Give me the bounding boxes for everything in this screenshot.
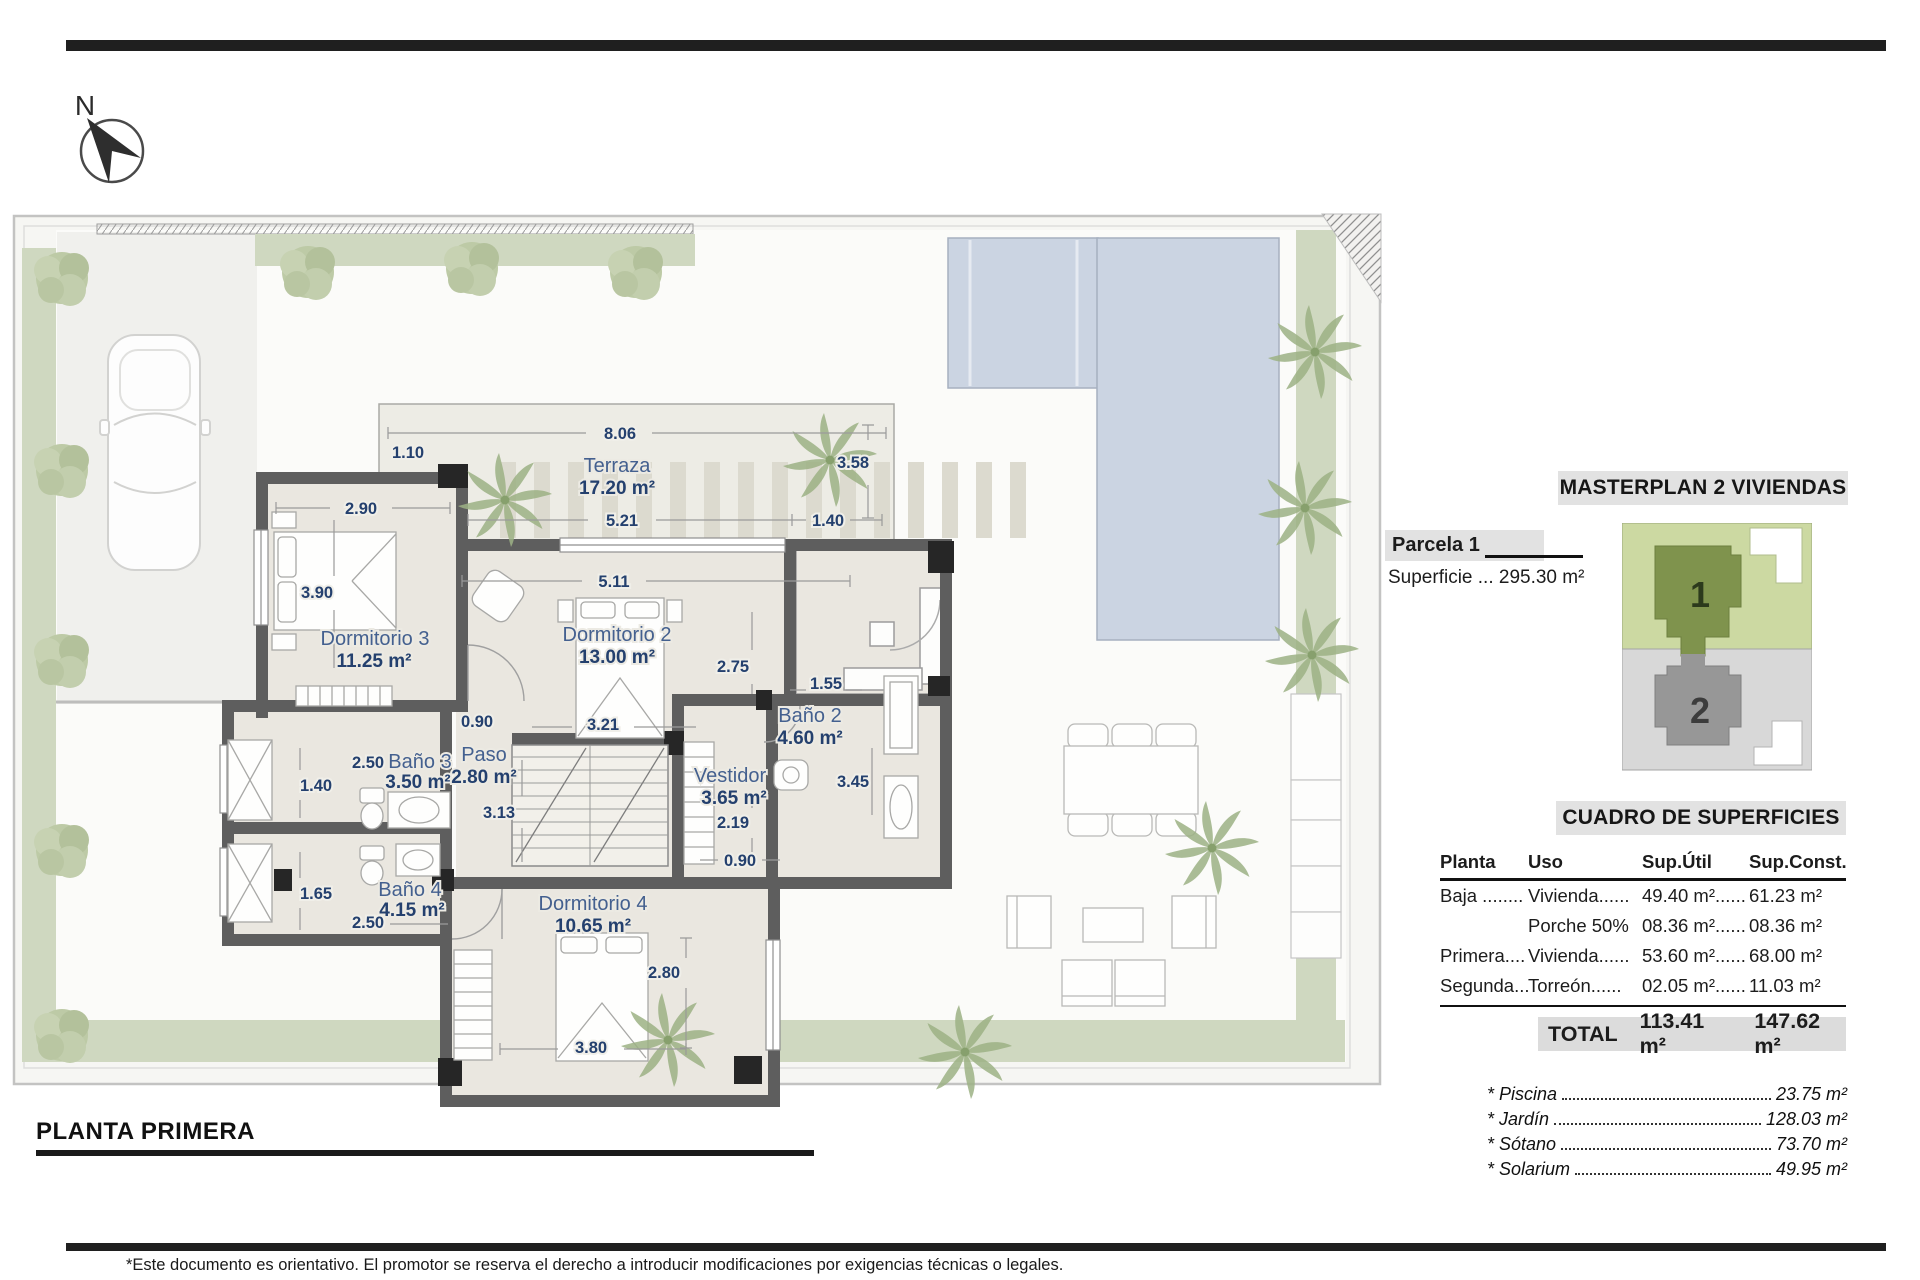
dim-terraza-inner: 5.21 bbox=[606, 512, 638, 530]
extra-row-sotano: * Sótano73.70 m² bbox=[1487, 1134, 1847, 1159]
masterplan-title: MASTERPLAN 2 VIVIENDAS bbox=[1558, 471, 1848, 505]
dim-terraza-gap: 1.40 bbox=[812, 512, 844, 530]
room-label-terraza: Terraza bbox=[584, 455, 652, 477]
table-rule-bottom bbox=[1440, 1005, 1846, 1007]
room-label-bano2: Baño 2 bbox=[778, 705, 841, 727]
dim-dorm3-height: 3.90 bbox=[301, 584, 333, 602]
dim-bano4-width: 2.50 bbox=[352, 914, 384, 932]
total-const: 147.62 m² bbox=[1754, 1009, 1836, 1059]
extra-row-jardin: * Jardín128.03 m² bbox=[1487, 1109, 1847, 1134]
dining-set bbox=[1064, 724, 1198, 836]
dim-dorm2-width: 5.11 bbox=[598, 573, 629, 591]
masterplan-diagram: 1 2 bbox=[1622, 523, 1812, 771]
room-label-paso: Paso bbox=[461, 744, 507, 766]
dim-terraza-right: 3.58 bbox=[837, 454, 869, 472]
north-label: N bbox=[75, 90, 95, 121]
dotted-leader bbox=[1561, 1148, 1771, 1150]
table-row: Primera.... Vivienda...... 53.60 m².....… bbox=[1440, 941, 1846, 971]
room-area-vestidor: 3.65 m² bbox=[701, 788, 766, 809]
dim-paso-height: 3.13 bbox=[483, 804, 515, 822]
room-label-bano3: Baño 3 bbox=[388, 751, 451, 773]
room-label-vestidor: Vestidor bbox=[694, 765, 767, 787]
table-row: Baja ........ Vivienda...... 49.40 m²...… bbox=[1440, 881, 1846, 911]
extras-list: * Piscina23.75 m² * Jardín128.03 m² * Só… bbox=[1487, 1084, 1847, 1184]
room-area-dorm4: 10.65 m² bbox=[555, 916, 631, 937]
unit2-number: 2 bbox=[1690, 690, 1710, 731]
bottom-rule bbox=[66, 1243, 1886, 1251]
dim-bano3-width: 2.50 bbox=[352, 754, 384, 772]
extra-row-piscina: * Piscina23.75 m² bbox=[1487, 1084, 1847, 1109]
room-label-dorm2: Dormitorio 2 bbox=[563, 624, 672, 646]
dim-bano2-width: 1.55 bbox=[810, 675, 842, 693]
room-area-paso: 2.80 m² bbox=[451, 767, 516, 788]
dim-bano2-height: 3.45 bbox=[837, 773, 869, 791]
col-sup-util: Sup.Útil bbox=[1642, 851, 1749, 873]
car bbox=[100, 335, 210, 570]
col-sup-const: Sup.Const. bbox=[1749, 851, 1846, 873]
gate-hatch bbox=[97, 224, 693, 234]
room-area-terraza: 17.20 m² bbox=[579, 478, 655, 499]
plan-title: PLANTA PRIMERA bbox=[36, 1118, 255, 1146]
parcela-underline bbox=[1485, 555, 1583, 558]
table-row: Segunda... Torreón...... 02.05 m²...... … bbox=[1440, 971, 1846, 1001]
disclaimer-text: *Este documento es orientativo. El promo… bbox=[126, 1256, 1063, 1275]
dim-terraza-width: 8.06 bbox=[604, 425, 636, 443]
dim-dorm4-width: 3.80 bbox=[575, 1039, 607, 1057]
total-label: TOTAL bbox=[1548, 1022, 1618, 1047]
dotted-leader bbox=[1554, 1123, 1761, 1125]
total-row: TOTAL 113.41 m² 147.62 m² bbox=[1538, 1017, 1846, 1051]
house2-tab bbox=[1681, 654, 1705, 668]
north-compass: N bbox=[75, 90, 143, 183]
unit1-number: 1 bbox=[1690, 574, 1710, 615]
room-area-bano4: 4.15 m² bbox=[379, 900, 444, 921]
room-label-bano4: Baño 4 bbox=[378, 879, 441, 901]
total-util: 113.41 m² bbox=[1640, 1009, 1721, 1059]
room-area-dorm3: 11.25 m² bbox=[337, 651, 412, 672]
dim-bano3-height: 1.40 bbox=[300, 777, 332, 795]
parcela-block: Parcela 1 Superficie ... 295.30 m² bbox=[1385, 530, 1595, 589]
plan-title-rule bbox=[36, 1150, 814, 1156]
dim-terraza-left: 1.10 bbox=[392, 444, 424, 462]
dim-dorm2-height: 2.75 bbox=[717, 658, 749, 676]
cuadro-title: CUADRO DE SUPERFICIES bbox=[1556, 801, 1846, 835]
stairs bbox=[512, 745, 668, 866]
extra-row-solarium: * Solarium49.95 m² bbox=[1487, 1159, 1847, 1184]
right-steps bbox=[1291, 694, 1341, 958]
dim-bed2-width: 3.21 bbox=[587, 716, 619, 734]
room-area-bano3: 3.50 m² bbox=[385, 772, 450, 793]
col-planta: Planta bbox=[1440, 851, 1528, 873]
dim-dorm4-height: 2.80 bbox=[648, 964, 680, 982]
superficies-table: Planta Uso Sup.Útil Sup.Const. Baja ....… bbox=[1440, 846, 1846, 1051]
dim-vestidor-height: 2.19 bbox=[717, 814, 749, 832]
parcela-superficie: Superficie ... 295.30 m² bbox=[1385, 567, 1595, 589]
dotted-leader bbox=[1562, 1098, 1771, 1100]
room-label-dorm3: Dormitorio 3 bbox=[321, 628, 430, 650]
dim-bano4-height: 1.65 bbox=[300, 885, 332, 903]
room-area-dorm2: 13.00 m² bbox=[579, 647, 655, 668]
table-header-row: Planta Uso Sup.Útil Sup.Const. bbox=[1440, 846, 1846, 878]
table-row: Porche 50% 08.36 m²...... 08.36 m² bbox=[1440, 911, 1846, 941]
dim-dorm3-width: 2.90 bbox=[345, 500, 377, 518]
room-area-bano2: 4.60 m² bbox=[777, 728, 842, 749]
dim-paso-width: 0.90 bbox=[461, 713, 493, 731]
room-label-dorm4: Dormitorio 4 bbox=[539, 893, 648, 915]
dotted-leader bbox=[1575, 1173, 1771, 1175]
col-uso: Uso bbox=[1528, 851, 1642, 873]
dim-vestidor-width: 0.90 bbox=[724, 852, 756, 870]
bed-dorm2 bbox=[558, 598, 682, 738]
